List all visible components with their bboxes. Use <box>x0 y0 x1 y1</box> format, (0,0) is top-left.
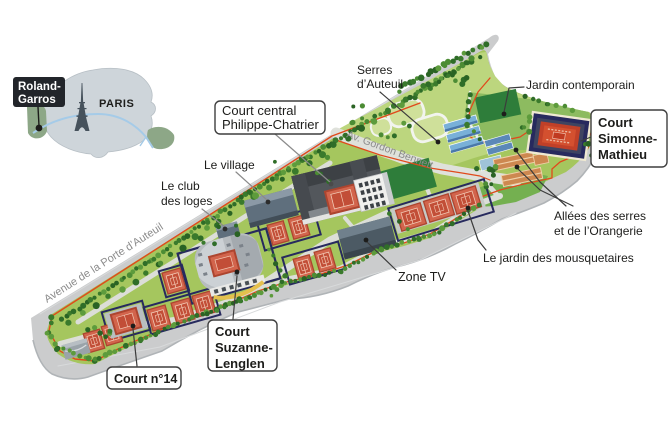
svg-text:Le village: Le village <box>204 158 255 172</box>
svg-text:Zone TV: Zone TV <box>398 270 446 284</box>
svg-text:Court: Court <box>215 324 250 339</box>
svg-text:Court central: Court central <box>222 103 297 118</box>
svg-text:Garros: Garros <box>18 94 56 106</box>
svg-text:Allées des serres: Allées des serres <box>554 209 646 223</box>
svg-text:Lenglen: Lenglen <box>215 356 265 371</box>
svg-text:PARIS: PARIS <box>99 98 134 110</box>
svg-text:et de l’Orangerie: et de l’Orangerie <box>554 224 643 238</box>
svg-text:Le club: Le club <box>161 179 200 193</box>
svg-text:Le jardin des mousquetaires: Le jardin des mousquetaires <box>483 251 634 265</box>
svg-text:Court: Court <box>598 115 633 130</box>
svg-text:Suzanne-: Suzanne- <box>215 340 273 355</box>
svg-text:Serres: Serres <box>357 63 392 77</box>
svg-text:Philippe-Chatrier: Philippe-Chatrier <box>222 117 319 132</box>
svg-text:d’Auteuil: d’Auteuil <box>357 77 403 91</box>
svg-text:Mathieu: Mathieu <box>598 147 647 162</box>
svg-text:des loges: des loges <box>161 194 212 208</box>
svg-text:Roland-: Roland- <box>18 81 61 93</box>
svg-text:Court n°14: Court n°14 <box>114 372 177 386</box>
svg-text:Jardin contemporain: Jardin contemporain <box>526 78 635 92</box>
svg-text:Simonne-: Simonne- <box>598 131 657 146</box>
